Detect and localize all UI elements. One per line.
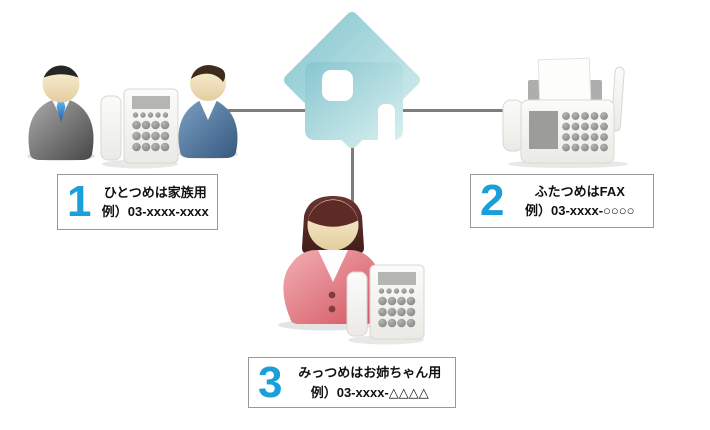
label-line2: 例）03-xxxx-○○○○ (506, 201, 653, 221)
label-box-3: 3 みっつめはお姉ちゃん用 例）03-xxxx-△△△△ (248, 357, 456, 408)
fax-handset (503, 100, 523, 151)
label-line1: ひとつめは家族用 (93, 183, 217, 203)
label-number: 1 (58, 180, 93, 224)
label-number: 2 (471, 179, 506, 223)
fax-display (529, 111, 558, 149)
diagram-canvas: 1 ひとつめは家族用 例）03-xxxx-xxxx 2 ふたつめはFAX 例）0… (0, 0, 710, 430)
label-line2: 例）03-xxxx-xxxx (93, 202, 217, 222)
label-text: ひとつめは家族用 例）03-xxxx-xxxx (93, 183, 217, 222)
house-door (378, 104, 395, 148)
label-number: 3 (249, 361, 284, 405)
label-line2: 例）03-xxxx-△△△△ (284, 383, 455, 403)
telephone-icon (344, 260, 428, 346)
fax-machine-icon (498, 47, 646, 169)
fax-paper (538, 58, 590, 102)
label-line1: みっつめはお姉ちゃん用 (284, 363, 455, 383)
label-text: ふたつめはFAX 例）03-xxxx-○○○○ (506, 182, 653, 221)
label-text: みっつめはお姉ちゃん用 例）03-xxxx-△△△△ (284, 363, 455, 402)
label-box-1: 1 ひとつめは家族用 例）03-xxxx-xxxx (57, 174, 218, 230)
telephone-icon (98, 84, 182, 170)
label-line1: ふたつめはFAX (506, 182, 653, 202)
son-person-icon (172, 60, 244, 160)
house-window (322, 70, 353, 101)
label-box-2: 2 ふたつめはFAX 例）03-xxxx-○○○○ (470, 174, 654, 228)
house-icon (280, 8, 430, 148)
father-person-icon (20, 60, 104, 162)
